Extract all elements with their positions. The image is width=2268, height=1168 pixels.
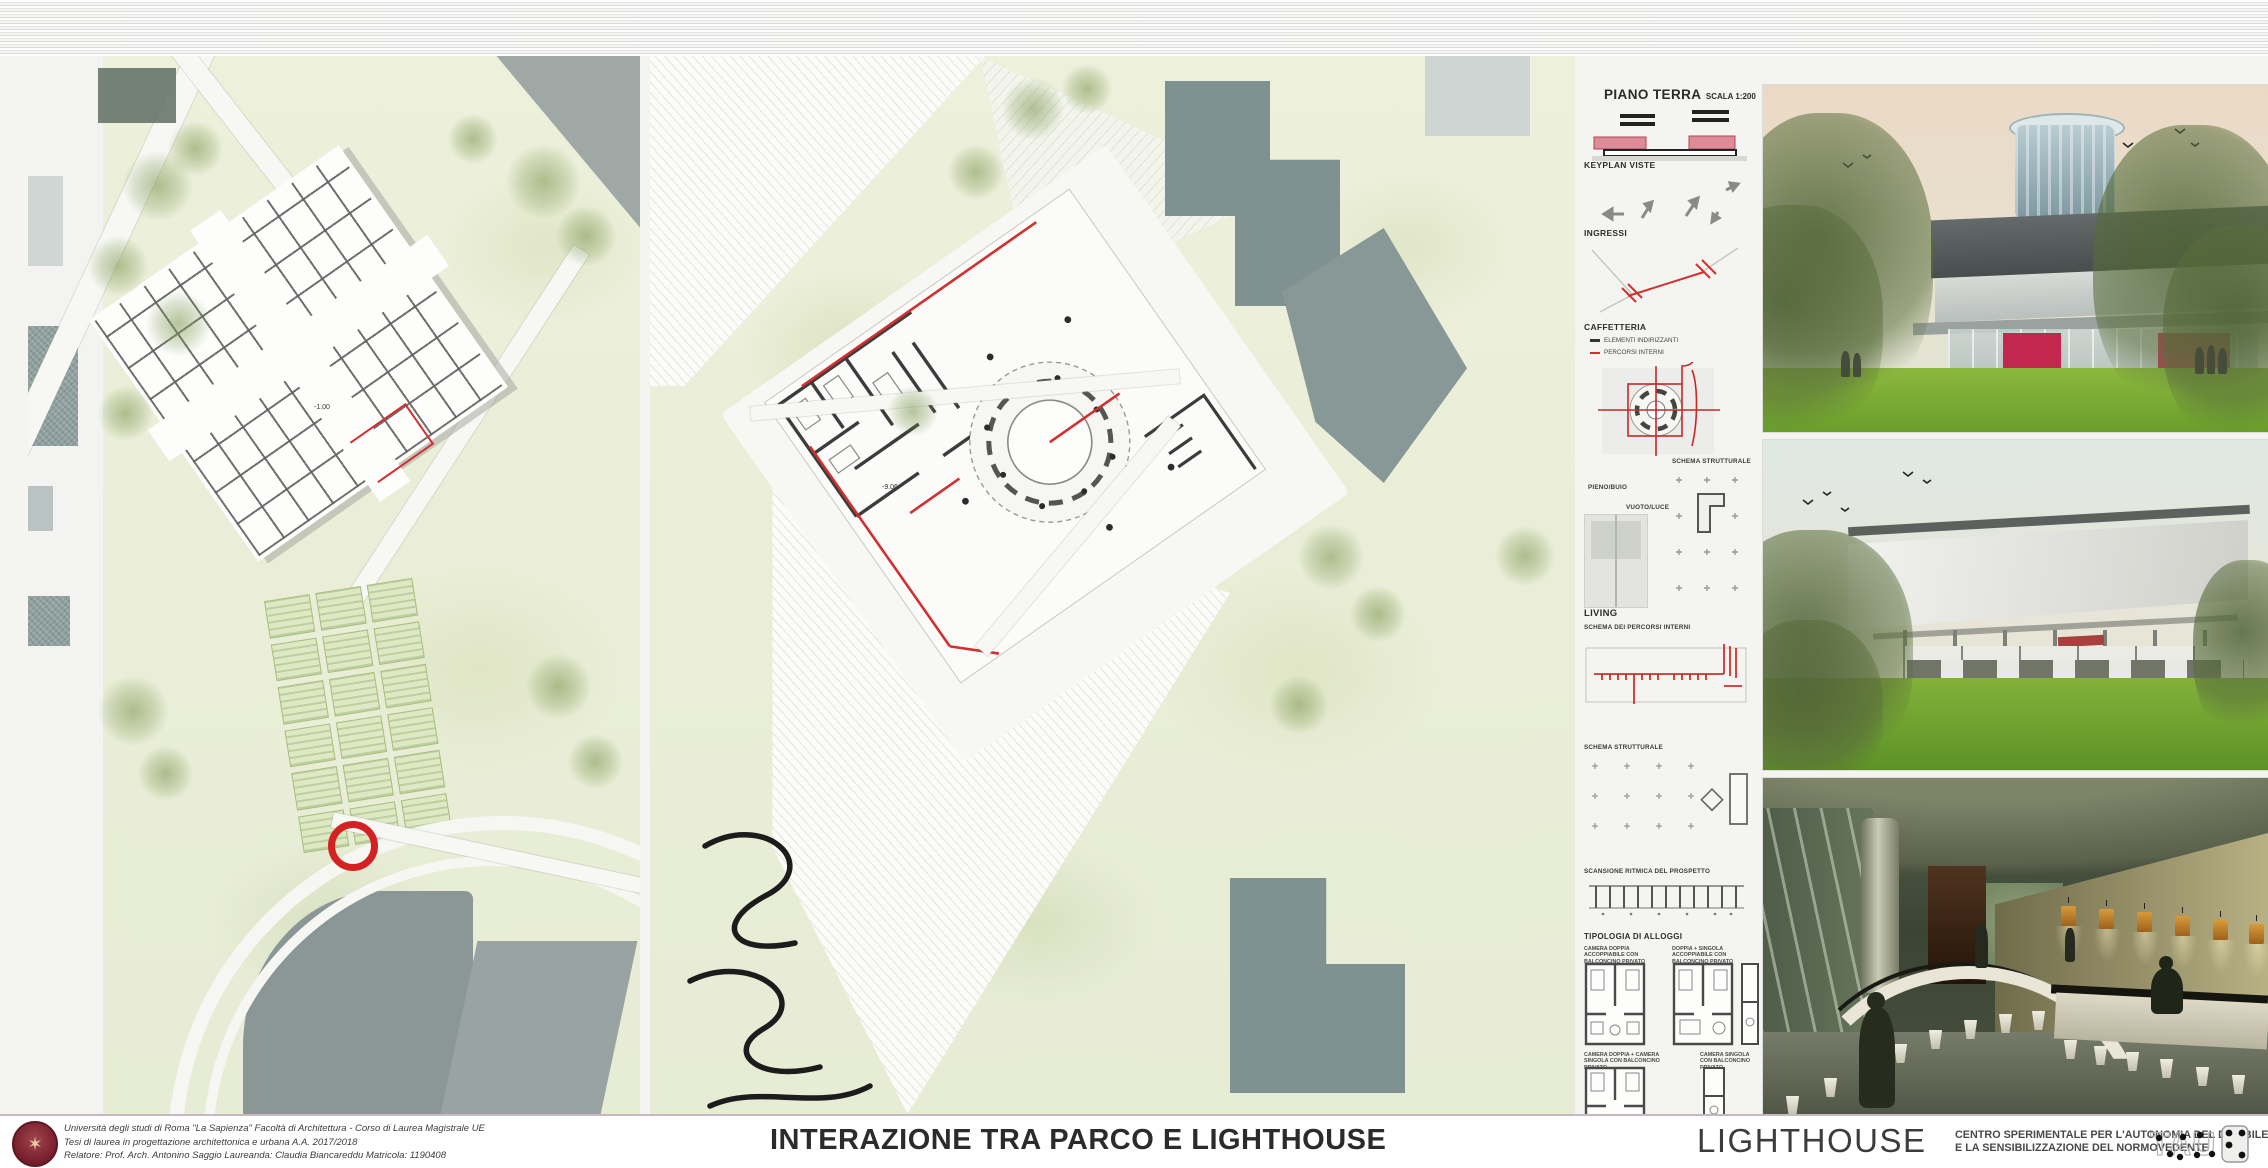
context-building	[28, 596, 70, 646]
title-block: ✶ Università degli studi di Roma "La Sap…	[0, 1114, 2268, 1168]
site-plan-right: -9.06	[650, 56, 1575, 1114]
tree	[146, 291, 211, 356]
context-building	[28, 486, 53, 531]
context-building	[28, 176, 63, 266]
legend-percorsi: PERCORSI INTERNI	[1590, 349, 1664, 356]
university-line-2: Tesi di laurea in progettazione architet…	[64, 1136, 485, 1150]
red-circle-marker	[328, 821, 378, 871]
pendant-lamp	[2175, 916, 2190, 936]
section-diagram	[1592, 108, 1747, 166]
column	[1861, 818, 1899, 993]
svg-text:TAU: TAU	[2150, 1126, 2216, 1162]
context-building-dark	[98, 68, 176, 123]
pendant-lamp	[2249, 924, 2264, 944]
context-building	[1425, 56, 1530, 136]
tree	[568, 734, 623, 789]
percorsi-interni-diagram	[1584, 634, 1749, 712]
person-silhouette	[2207, 345, 2215, 374]
hedge-squiggles	[665, 821, 955, 1114]
person-silhouette	[2218, 348, 2227, 374]
structure-grid-1	[1668, 468, 1758, 608]
level-annotation: -9.06	[882, 484, 898, 491]
render-slab-building	[1763, 440, 2268, 770]
legend-swatch-dark	[1590, 339, 1600, 342]
tree	[1298, 524, 1364, 590]
pendant-lamp	[2137, 912, 2152, 932]
piano-terra-scale: SCALA 1:200	[1706, 92, 1756, 101]
person-standing	[2065, 928, 2075, 962]
tree	[1062, 64, 1112, 114]
person-barista	[2151, 968, 2183, 1014]
ingressi-diagram	[1590, 242, 1740, 314]
lamp-light-cone	[2239, 944, 2268, 992]
vuoto-label: VUOTO/LUCE	[1626, 504, 1669, 511]
lamp-light-cone	[2203, 940, 2239, 988]
legend-percorsi-label: PERCORSI INTERNI	[1604, 349, 1664, 356]
caffetteria-diagram	[1594, 362, 1724, 464]
pieno-vuoto-diagram	[1584, 514, 1648, 608]
person-sitting	[1859, 1008, 1895, 1108]
schema-strutturale-2-label: SCHEMA STRUTTURALE	[1584, 744, 1663, 751]
top-striped-band	[0, 0, 2268, 56]
scansione-label: SCANSIONE RITMICA DEL PROSPETTO	[1584, 868, 1710, 875]
schema-percorsi-label: SCHEMA DEI PERCORSI INTERNI	[1584, 624, 1690, 631]
pieno-label: PIENO/BUIO	[1588, 484, 1627, 491]
sapienza-logo: ✶	[12, 1121, 58, 1167]
keyplan-label: KEYPLAN VISTE	[1584, 160, 1655, 170]
living-label: LIVING	[1584, 608, 1617, 619]
person-silhouette	[1841, 351, 1850, 377]
pendant-lamp	[2061, 906, 2076, 926]
unit-plan-3	[1584, 1066, 1646, 1114]
legend-elementi-label: ELEMENTI INDIRIZZANTI	[1604, 337, 1678, 344]
pendant-lamp	[2213, 920, 2228, 940]
person-silhouette	[2195, 347, 2204, 374]
unit-plan-4	[1702, 1066, 1726, 1114]
tree	[526, 654, 591, 719]
tree	[506, 144, 581, 219]
tree	[1495, 526, 1555, 586]
university-info: Università degli studi di Roma "La Sapie…	[64, 1122, 485, 1163]
render-interior-cafeteria	[1763, 778, 2268, 1118]
unit-plan-2	[1672, 962, 1734, 1046]
tree	[168, 121, 223, 176]
structure-grid-2	[1582, 754, 1754, 846]
piano-terra-label: PIANO TERRA	[1604, 87, 1701, 102]
braille-logo: TAU	[2150, 1124, 2254, 1164]
board-title: INTERAZIONE TRA PARCO E LIGHTHOUSE	[770, 1124, 1290, 1157]
tree	[1002, 78, 1064, 140]
ingressi-label: INGRESSI	[1584, 228, 1627, 238]
tree	[98, 386, 153, 441]
tree	[556, 206, 616, 266]
university-line-1: Università degli studi di Roma "La Sapie…	[64, 1122, 485, 1136]
level-annotation: -1.00	[314, 404, 330, 411]
context-building	[1230, 878, 1405, 1093]
presentation-board: -1.00	[0, 0, 2268, 1168]
tree	[98, 676, 168, 746]
divider-line	[1615, 515, 1617, 607]
floor-plan-title: PIANO TERRA SCALA 1:200	[1604, 86, 1756, 104]
person-silhouette	[1853, 353, 1861, 377]
university-line-3: Relatore: Prof. Arch. Antonino Saggio La…	[64, 1149, 485, 1163]
caffetteria-label: CAFFETTERIA	[1584, 322, 1646, 332]
unit-plan-narrow	[1740, 962, 1760, 1046]
render-exterior-tower	[1763, 85, 2268, 432]
tree	[448, 114, 498, 164]
tree	[888, 386, 938, 436]
legend-elementi: ELEMENTI INDIRIZZANTI	[1590, 337, 1678, 344]
keyplan-arrows	[1590, 174, 1750, 236]
pendant-lamp	[2099, 909, 2114, 929]
diagram-column: PIANO TERRA SCALA 1:200 KEYPLAN VISTE IN…	[1582, 56, 1760, 1114]
tree	[1270, 676, 1328, 734]
tree	[948, 144, 1004, 200]
site-plan-left: -1.00	[28, 56, 640, 1114]
tipologia-label: TIPOLOGIA DI ALLOGGI	[1584, 932, 1682, 941]
facade-rhythm-diagram	[1584, 878, 1749, 920]
legend-swatch-red	[1590, 352, 1600, 354]
unit-plan-1	[1584, 962, 1646, 1046]
tree	[138, 746, 193, 801]
person-standing	[1975, 924, 1988, 968]
tree	[88, 236, 148, 296]
tree	[1350, 586, 1406, 642]
schema-strutturale-1-label: SCHEMA STRUTTURALE	[1672, 458, 1751, 465]
lamp-light-cone	[2089, 929, 2125, 977]
project-title: LIGHTHOUSE	[1697, 1122, 1927, 1160]
